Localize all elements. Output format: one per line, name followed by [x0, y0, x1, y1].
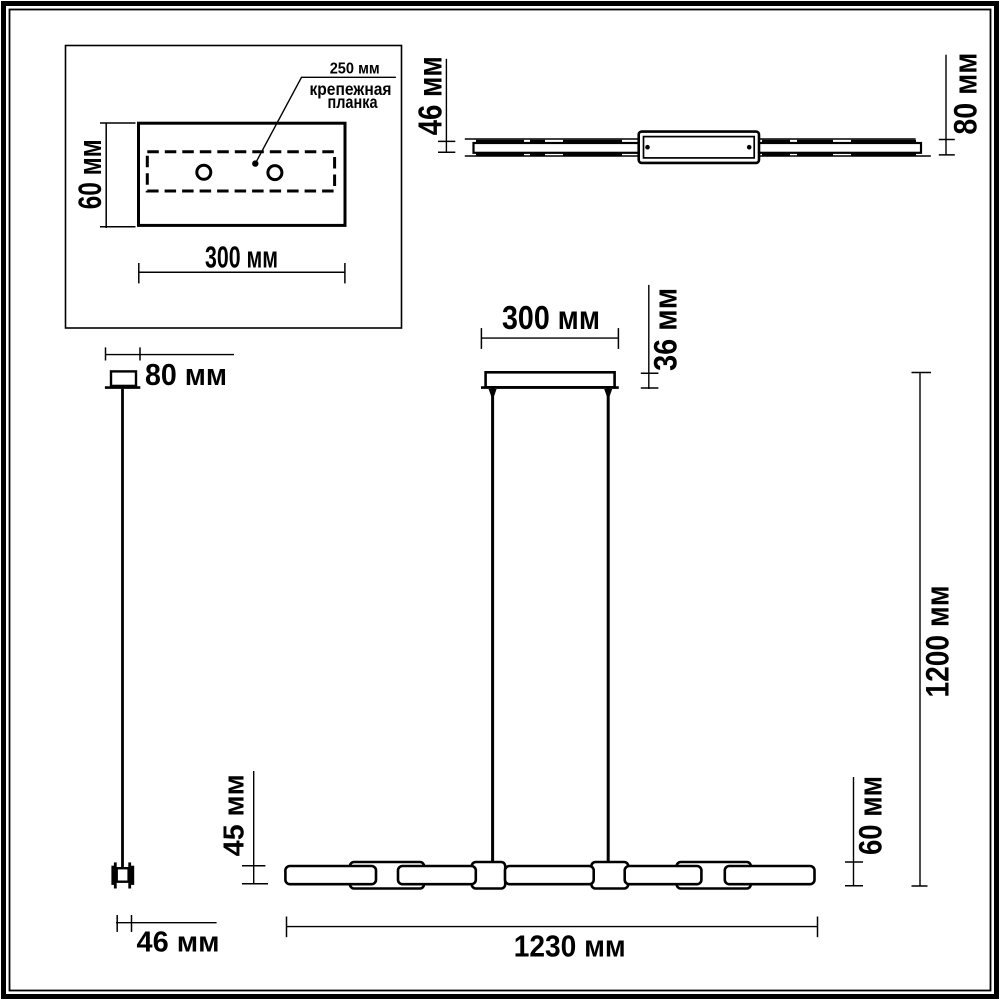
svg-text:45 мм: 45 мм: [219, 774, 251, 856]
svg-text:300 мм: 300 мм: [502, 299, 600, 336]
svg-text:60 мм: 60 мм: [853, 776, 889, 855]
svg-text:80 мм: 80 мм: [948, 53, 984, 135]
svg-text:46 мм: 46 мм: [412, 56, 449, 135]
svg-text:36 мм: 36 мм: [648, 288, 684, 371]
svg-text:планка: планка: [328, 92, 378, 112]
svg-text:1230 мм: 1230 мм: [514, 929, 626, 964]
svg-text:60 мм: 60 мм: [72, 139, 108, 209]
svg-text:80 мм: 80 мм: [145, 357, 227, 392]
svg-text:250 мм: 250 мм: [330, 61, 380, 78]
svg-text:300 мм: 300 мм: [205, 240, 278, 275]
svg-text:46 мм: 46 мм: [137, 927, 220, 959]
svg-text:1200 мм: 1200 мм: [920, 586, 956, 698]
